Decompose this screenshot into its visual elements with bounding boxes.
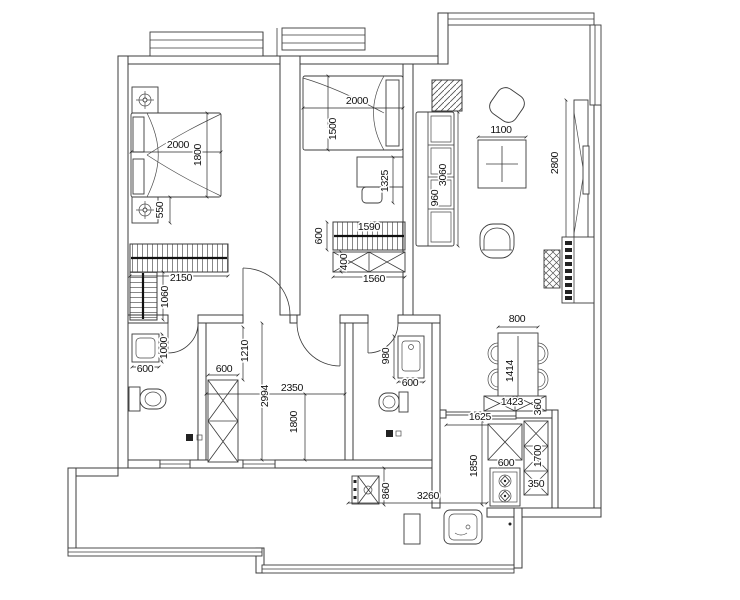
dimension-label: 1850 [468, 454, 480, 477]
dimension-label: 1423 [501, 396, 524, 408]
floor-plan-canvas: 2000180055021501060100060020001500132560… [0, 0, 740, 600]
wall-study-right [345, 323, 353, 460]
dimension-label: 960 [429, 189, 441, 206]
hall-wall-c [290, 315, 297, 323]
wall-bottom-a [128, 460, 160, 468]
hall-wall-d [340, 315, 368, 323]
dimension-label: 1414 [504, 359, 516, 382]
dimension-label: 350 [528, 478, 545, 490]
balcony-column [404, 514, 420, 544]
dimension-label: 1590 [358, 221, 381, 233]
kitchen-right-wall [552, 410, 558, 508]
ottoman [486, 84, 528, 126]
study-door [297, 323, 340, 366]
dimension-label: 360 [532, 398, 544, 415]
dimension-label: 1500 [327, 117, 339, 140]
balcony-right-wall [514, 508, 522, 568]
bay-window-bedroom2 [282, 28, 365, 50]
dimension-label: 400 [338, 253, 350, 270]
hall-wall-e [398, 315, 440, 323]
living-room [416, 80, 594, 303]
dimension-label: 1800 [288, 410, 300, 433]
wall-top-right-vertical [438, 13, 448, 64]
vanity-sink [398, 336, 424, 378]
drain-point [509, 523, 512, 526]
washing-machine [352, 476, 379, 504]
floor-drain-icon [386, 430, 401, 437]
dimension-label: 600 [402, 377, 419, 389]
dining-chair [488, 369, 498, 390]
window-living-right [590, 25, 601, 105]
dimension-label: 860 [380, 482, 392, 499]
floor-plan-svg: 2000180055021501060100060020001500132560… [0, 0, 740, 600]
laundry-sink [444, 510, 482, 544]
bay-window-master [150, 32, 263, 56]
dimension-label: 2994 [259, 384, 271, 407]
dimension-label: 1625 [469, 411, 492, 423]
balcony-left-wall [68, 468, 76, 550]
dimension-label: 1210 [239, 339, 251, 362]
dimension-label: 1800 [192, 143, 204, 166]
kitchen-counter [488, 424, 522, 460]
dimension-label: 2000 [167, 139, 190, 151]
bay-step-lines [263, 28, 277, 56]
dining-chair [538, 369, 548, 390]
dimension-label: 1060 [159, 285, 171, 308]
pillow [133, 117, 144, 152]
dimension-label: 600 [498, 457, 515, 469]
balcony [348, 468, 512, 544]
vanity-sink [132, 334, 159, 362]
dimension-label: 3060 [437, 163, 449, 186]
dimension-label: 1325 [379, 169, 391, 192]
wardrobe-study [208, 380, 238, 462]
dimension-label: 1000 [158, 336, 170, 359]
armchair [480, 224, 514, 258]
dining-chair [538, 343, 548, 364]
dimension-label: 1100 [490, 124, 512, 136]
bath1-door [168, 323, 198, 353]
dimension-label: 980 [380, 347, 392, 364]
wall-bottom-c [275, 460, 440, 468]
dimension-label: 600 [216, 363, 233, 375]
tv-unit [574, 100, 589, 246]
coffee-table [478, 140, 526, 188]
dimension-label: 2000 [346, 95, 369, 107]
dimension-label: 2800 [549, 151, 561, 174]
dimension-label: 600 [137, 363, 154, 375]
wall-bath2-right [432, 323, 440, 508]
dimension-label: 800 [509, 313, 526, 325]
pillow [133, 159, 144, 194]
dimension-label: 550 [154, 201, 166, 218]
dimension-label: 1560 [363, 273, 386, 285]
toilet [129, 387, 166, 411]
wall-bottom-right [487, 508, 601, 517]
stove [490, 468, 520, 506]
side-table-hatched [432, 80, 462, 111]
shoe-cabinet [562, 237, 594, 303]
toilet [379, 392, 408, 412]
double-bed [131, 113, 221, 197]
study-room [206, 323, 345, 462]
dining-chair [488, 343, 498, 364]
wall-between-bedrooms [280, 56, 300, 315]
dimension-label: 3260 [417, 490, 440, 502]
dimension-label: 600 [313, 227, 325, 244]
door-mat [544, 250, 560, 288]
dimension-label: 2350 [281, 382, 304, 394]
wall-right [594, 105, 601, 510]
hall-wall-b [198, 315, 243, 323]
wall-left [118, 56, 128, 468]
pillow [386, 80, 399, 146]
kitchen-door-stub-left [440, 410, 446, 418]
dimension-label: 1700 [532, 444, 544, 467]
dimension-label: 2150 [170, 272, 193, 284]
